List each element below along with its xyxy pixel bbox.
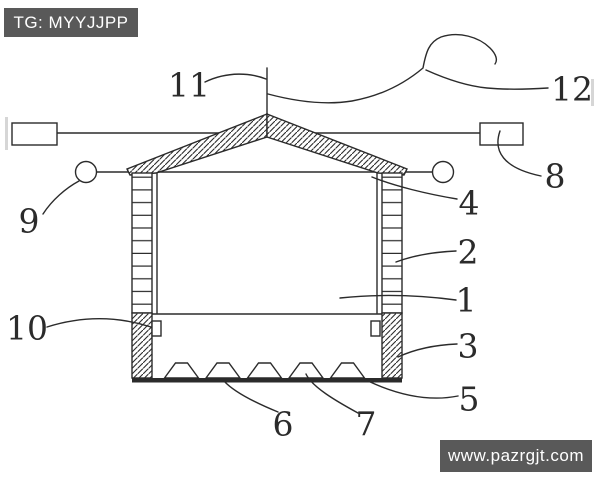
- serration-tooth-4: [289, 363, 323, 378]
- label-1: 1: [456, 284, 477, 317]
- label-2: 2: [458, 236, 479, 269]
- anchor-block-left: [12, 123, 57, 145]
- inner-block-left: [152, 321, 161, 336]
- eye-ring-left: [76, 162, 97, 183]
- patent-figure: [0, 0, 600, 480]
- serration-tooth-2: [206, 363, 240, 378]
- leader-2: [396, 251, 456, 262]
- label-11: 11: [168, 69, 210, 102]
- eye-ring-right: [433, 162, 454, 183]
- serration-tooth-1: [165, 363, 199, 378]
- watermark-top-left-text: TG: MYYJJPP: [13, 13, 128, 33]
- scan-artifact-left: [5, 117, 8, 150]
- leader-9: [43, 181, 79, 214]
- label-9: 9: [19, 205, 40, 238]
- left-wall: [132, 173, 152, 313]
- hooked-cable: [268, 35, 496, 103]
- watermark-bottom-right-text: www.pazrgjt.com: [448, 446, 584, 466]
- label-12: 12: [551, 73, 593, 106]
- label-8: 8: [545, 160, 566, 193]
- inner-block-right: [371, 321, 380, 336]
- label-3: 3: [458, 330, 479, 363]
- label-10: 10: [6, 312, 48, 345]
- leader-6: [224, 381, 278, 412]
- label-4: 4: [459, 187, 480, 220]
- base-block-right: [382, 313, 402, 378]
- anchor-block-right: [480, 123, 523, 145]
- roof-slope-right: [267, 114, 407, 175]
- serration-tooth-5: [331, 363, 365, 378]
- label-5: 5: [459, 383, 480, 416]
- screenshot-root: 1 2 3 4 5 6 7 8 9 10 11 12 TG: MYYJJPP w…: [0, 0, 600, 480]
- serration-tooth-3: [248, 363, 282, 378]
- label-6: 6: [273, 408, 294, 441]
- label-7: 7: [356, 408, 377, 441]
- roof-slope-left: [127, 114, 267, 175]
- leader-3: [398, 344, 457, 357]
- watermark-top-left: TG: MYYJJPP: [4, 8, 138, 37]
- leader-12: [426, 70, 548, 89]
- leader-11: [205, 74, 266, 82]
- leader-5: [368, 381, 458, 398]
- watermark-bottom-right: www.pazrgjt.com: [440, 440, 592, 472]
- right-wall: [382, 173, 402, 313]
